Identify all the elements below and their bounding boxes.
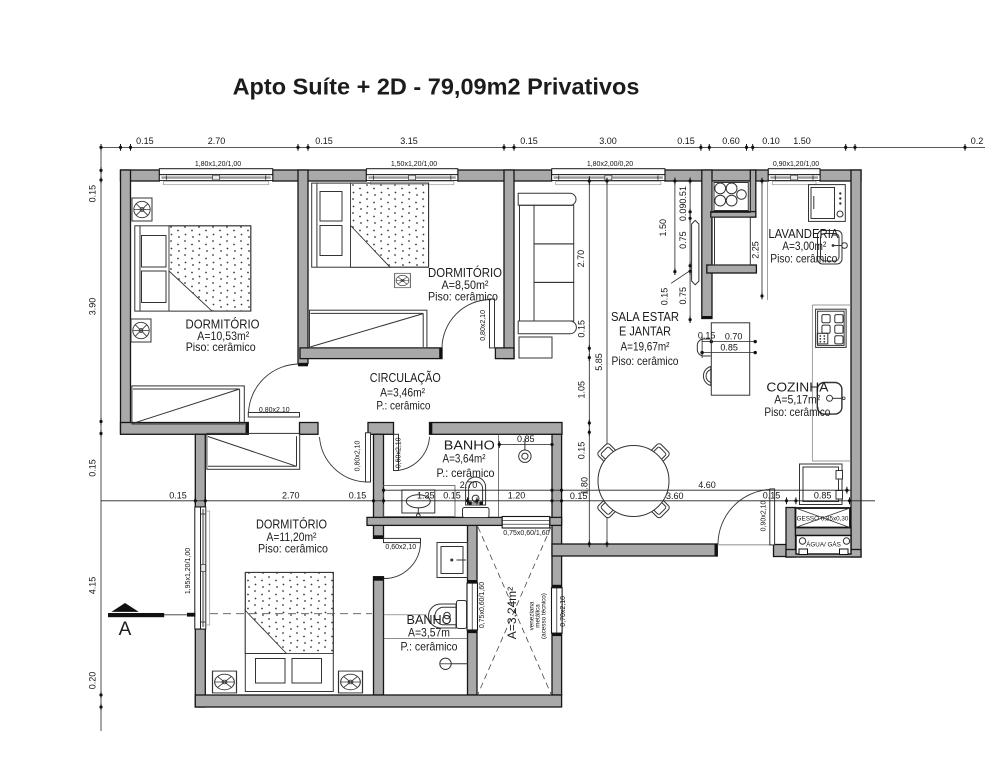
svg-text:1,95x1,20/1,00: 1,95x1,20/1,00	[185, 548, 192, 594]
svg-text:0.15: 0.15	[577, 442, 587, 460]
svg-text:2.70: 2.70	[282, 490, 300, 500]
svg-text:1,50x1,20/1,00: 1,50x1,20/1,00	[391, 161, 437, 168]
svg-text:Piso: cerâmico: Piso: cerâmico	[764, 405, 830, 419]
svg-text:1.20: 1.20	[508, 490, 526, 500]
svg-text:0.85: 0.85	[814, 490, 832, 500]
svg-text:A=3,24m²: A=3,24m²	[505, 587, 519, 639]
svg-text:0.51: 0.51	[678, 186, 688, 204]
svg-text:0,90x2,10: 0,90x2,10	[761, 501, 768, 532]
svg-text:1.50: 1.50	[793, 136, 811, 146]
svg-text:0.15: 0.15	[577, 320, 587, 338]
svg-text:0.15: 0.15	[169, 490, 187, 500]
svg-text:2.70: 2.70	[576, 250, 586, 268]
svg-text:0,75x0,60/1,60: 0,75x0,60/1,60	[479, 582, 486, 628]
svg-text:0.75: 0.75	[678, 287, 688, 305]
svg-text:0.15: 0.15	[763, 490, 781, 500]
svg-text:BANHO: BANHO	[444, 438, 495, 452]
svg-text:4.15: 4.15	[88, 577, 98, 595]
svg-text:0,80x2,10: 0,80x2,10	[480, 310, 487, 341]
svg-text:0.75: 0.75	[678, 231, 688, 249]
svg-text:3.60: 3.60	[666, 491, 684, 501]
svg-text:(acesso técnico): (acesso técnico)	[541, 593, 548, 639]
svg-text:P.: cerâmico: P.: cerâmico	[376, 399, 430, 413]
svg-text:0.09: 0.09	[678, 204, 688, 222]
svg-text:GESSO 0,85x0,30: GESSO 0,85x0,30	[797, 516, 849, 523]
svg-text:1.05: 1.05	[577, 381, 587, 399]
svg-text:2.25: 2.25	[751, 241, 761, 259]
svg-text:Piso: cerâmico: Piso: cerâmico	[186, 340, 256, 354]
svg-text:0.15: 0.15	[443, 490, 461, 500]
svg-text:Piso: cerâmico: Piso: cerâmico	[770, 252, 837, 266]
svg-text:0.85: 0.85	[720, 343, 738, 353]
svg-text:5.85: 5.85	[594, 353, 604, 371]
svg-text:3.15: 3.15	[400, 136, 418, 146]
svg-text:1.50: 1.50	[658, 219, 668, 237]
svg-text:1,80x1,20/1,00: 1,80x1,20/1,00	[195, 161, 241, 168]
svg-text:0.15: 0.15	[677, 136, 695, 146]
svg-text:SALA ESTAR: SALA ESTAR	[611, 310, 679, 324]
svg-text:0.15: 0.15	[659, 288, 669, 306]
svg-text:1,80x2,00/0,20: 1,80x2,00/0,20	[587, 161, 633, 168]
svg-text:A: A	[119, 619, 132, 640]
svg-text:0.15: 0.15	[88, 459, 98, 477]
svg-text:0,60x2,10: 0,60x2,10	[385, 544, 416, 551]
svg-text:0,75x0,60/1,60: 0,75x0,60/1,60	[503, 530, 549, 537]
svg-text:0,80x2,10: 0,80x2,10	[355, 441, 362, 472]
svg-text:CIRCULAÇÃO: CIRCULAÇÃO	[370, 371, 441, 385]
svg-text:2.70: 2.70	[460, 480, 478, 490]
svg-text:0.10: 0.10	[762, 136, 780, 146]
svg-text:3.00: 3.00	[599, 136, 617, 146]
svg-text:0.70: 0.70	[725, 332, 743, 342]
svg-text:ÁGUA/ GÁS: ÁGUA/ GÁS	[806, 540, 841, 549]
svg-text:Piso: cerâmico: Piso: cerâmico	[258, 542, 328, 556]
svg-text:4.60: 4.60	[698, 480, 716, 490]
svg-text:0.15: 0.15	[570, 491, 588, 501]
svg-text:A=3,64m²: A=3,64m²	[443, 451, 486, 465]
svg-text:0,90x1,20/1,00: 0,90x1,20/1,00	[773, 161, 819, 168]
svg-text:0.15: 0.15	[520, 136, 538, 146]
svg-text:0,80x2,10: 0,80x2,10	[259, 407, 290, 414]
svg-text:E JANTAR: E JANTAR	[619, 325, 671, 339]
svg-text:0.15: 0.15	[136, 136, 154, 146]
svg-text:0.2: 0.2	[971, 136, 984, 146]
svg-text:A=19,67m²: A=19,67m²	[621, 340, 670, 354]
svg-text:Piso: cerâmico: Piso: cerâmico	[428, 289, 498, 303]
svg-text:0.15: 0.15	[349, 491, 367, 501]
svg-text:0.85: 0.85	[517, 434, 535, 444]
svg-text:0.15: 0.15	[315, 136, 333, 146]
svg-text:A=3,46m²: A=3,46m²	[380, 386, 425, 400]
svg-text:Apto Suíte + 2D - 79,09m2 Priv: Apto Suíte + 2D - 79,09m2 Privativos	[233, 74, 640, 100]
svg-text:A=3,57m: A=3,57m	[408, 626, 450, 640]
svg-text:P.: cerâmico: P.: cerâmico	[437, 466, 495, 480]
svg-text:0.15: 0.15	[88, 185, 98, 203]
svg-text:0,70x2,10: 0,70x2,10	[560, 596, 567, 627]
svg-text:0.20: 0.20	[88, 672, 98, 690]
svg-text:2.70: 2.70	[208, 136, 226, 146]
svg-text:0,60x2,10: 0,60x2,10	[395, 437, 402, 468]
svg-text:3.90: 3.90	[88, 298, 98, 316]
svg-text:Piso: cerâmico: Piso: cerâmico	[612, 354, 679, 368]
svg-text:1.35: 1.35	[417, 490, 435, 500]
svg-text:P.: cerâmico: P.: cerâmico	[401, 640, 458, 654]
svg-text:0.60: 0.60	[722, 136, 740, 146]
